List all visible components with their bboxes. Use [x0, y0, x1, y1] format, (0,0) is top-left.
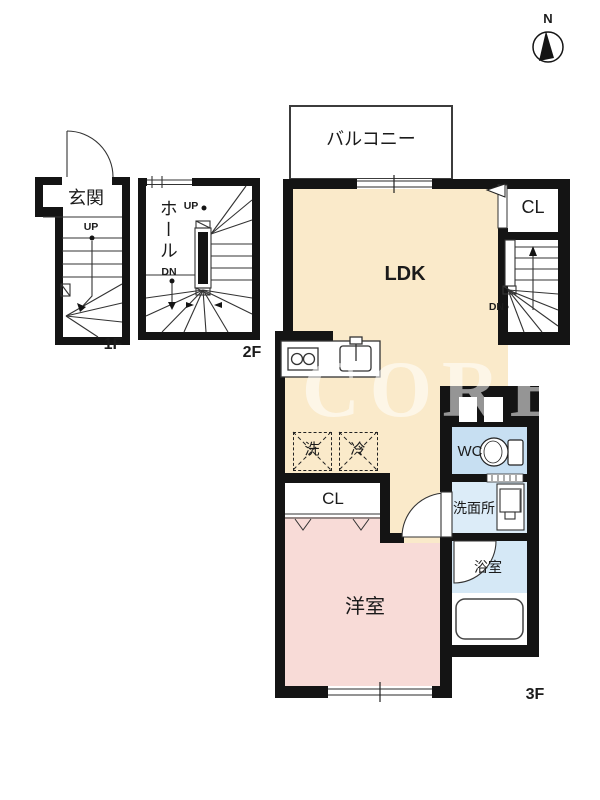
floor-plan: N 玄関 UP 1F ホール UP DN 2F バルコニー LDK CL DN … — [0, 0, 600, 800]
wall — [283, 179, 357, 189]
wall — [192, 178, 260, 186]
label-fridge: 冷 — [342, 441, 374, 458]
watermark: CORE — [302, 345, 573, 436]
label-hall: ホール — [157, 190, 178, 270]
label-floor-1f: 1F — [93, 336, 133, 354]
wall — [498, 228, 508, 336]
wall — [505, 232, 558, 240]
bathtub-icon — [456, 599, 523, 639]
wall — [440, 537, 452, 698]
wall — [432, 179, 570, 189]
floor3-stairs — [503, 240, 558, 332]
label-floor-2f: 2F — [232, 344, 272, 362]
wall — [380, 533, 404, 543]
wall — [122, 177, 130, 345]
label-closet-lower: CL — [298, 489, 368, 509]
north-label: N — [533, 12, 563, 27]
label-bathroom: 浴室 — [468, 559, 508, 575]
wall — [55, 207, 63, 345]
wall — [498, 332, 570, 345]
label-washer: 洗 — [296, 441, 328, 458]
label-ldk: LDK — [370, 263, 440, 286]
label-washroom: 洗面所 — [451, 500, 497, 516]
wall — [452, 474, 527, 482]
wall — [558, 179, 570, 345]
label-genkan: 玄関 — [56, 188, 116, 209]
label-balcony: バルコニー — [301, 129, 441, 150]
north-arrow-icon — [533, 31, 563, 62]
wall — [138, 332, 260, 340]
label-dn-3f: DN — [476, 301, 504, 313]
wall — [275, 686, 328, 698]
label-dn-2f: DN — [156, 266, 182, 278]
wall — [283, 179, 293, 341]
wall — [138, 178, 146, 340]
label-up-1f: UP — [76, 221, 106, 233]
label-closet-upper: CL — [508, 197, 558, 218]
wall — [283, 473, 390, 483]
wall — [440, 645, 539, 657]
label-wc: WC — [454, 443, 486, 460]
wall — [275, 331, 285, 698]
wall — [452, 533, 527, 541]
label-floor-3f: 3F — [515, 686, 555, 704]
label-western-room: 洋室 — [330, 596, 400, 619]
wall — [252, 178, 260, 340]
label-up-2f: UP — [178, 200, 204, 212]
